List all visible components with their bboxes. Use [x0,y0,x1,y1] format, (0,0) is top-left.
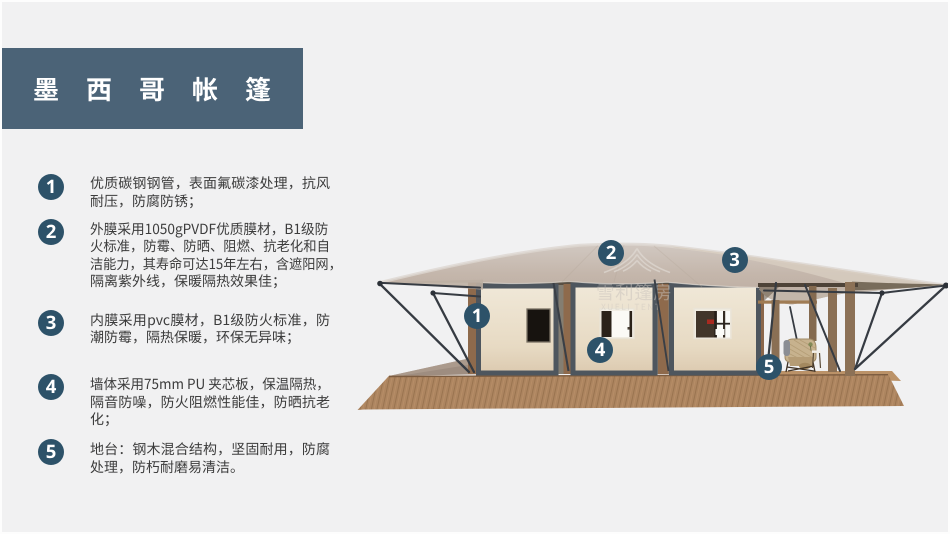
svg-text:XUELI TENT: XUELI TENT [601,301,661,313]
